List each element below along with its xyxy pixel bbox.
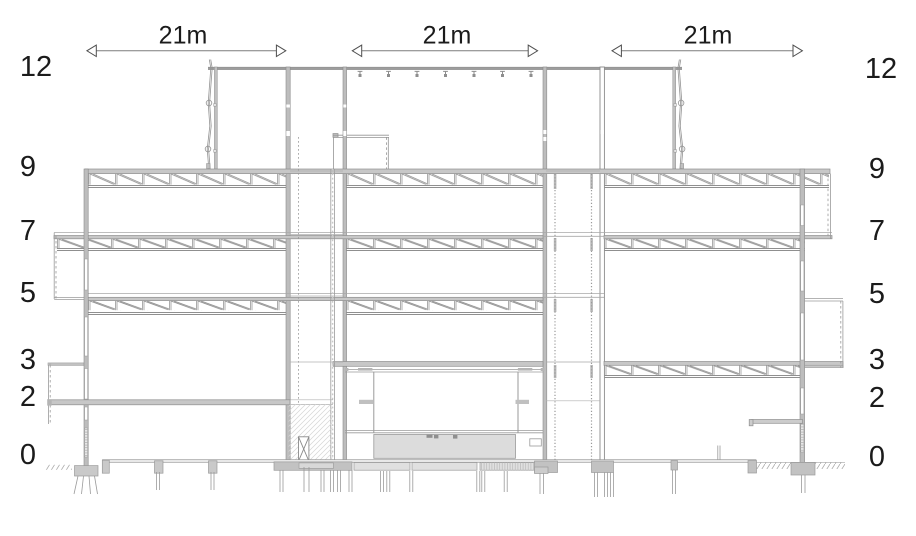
svg-text:7: 7	[20, 215, 36, 247]
svg-text:5: 5	[20, 277, 36, 309]
svg-text:12: 12	[865, 53, 897, 85]
svg-text:2: 2	[869, 382, 885, 414]
svg-text:2: 2	[20, 381, 36, 413]
svg-text:21m: 21m	[423, 22, 472, 50]
svg-text:9: 9	[20, 151, 36, 183]
svg-text:0: 0	[869, 441, 885, 473]
svg-text:3: 3	[20, 344, 36, 376]
svg-text:9: 9	[869, 153, 885, 185]
svg-text:5: 5	[869, 278, 885, 310]
svg-text:21m: 21m	[684, 22, 733, 50]
svg-text:21m: 21m	[159, 22, 208, 50]
svg-text:12: 12	[20, 51, 52, 83]
svg-text:3: 3	[869, 344, 885, 376]
svg-text:0: 0	[20, 439, 36, 471]
svg-text:7: 7	[869, 215, 885, 247]
